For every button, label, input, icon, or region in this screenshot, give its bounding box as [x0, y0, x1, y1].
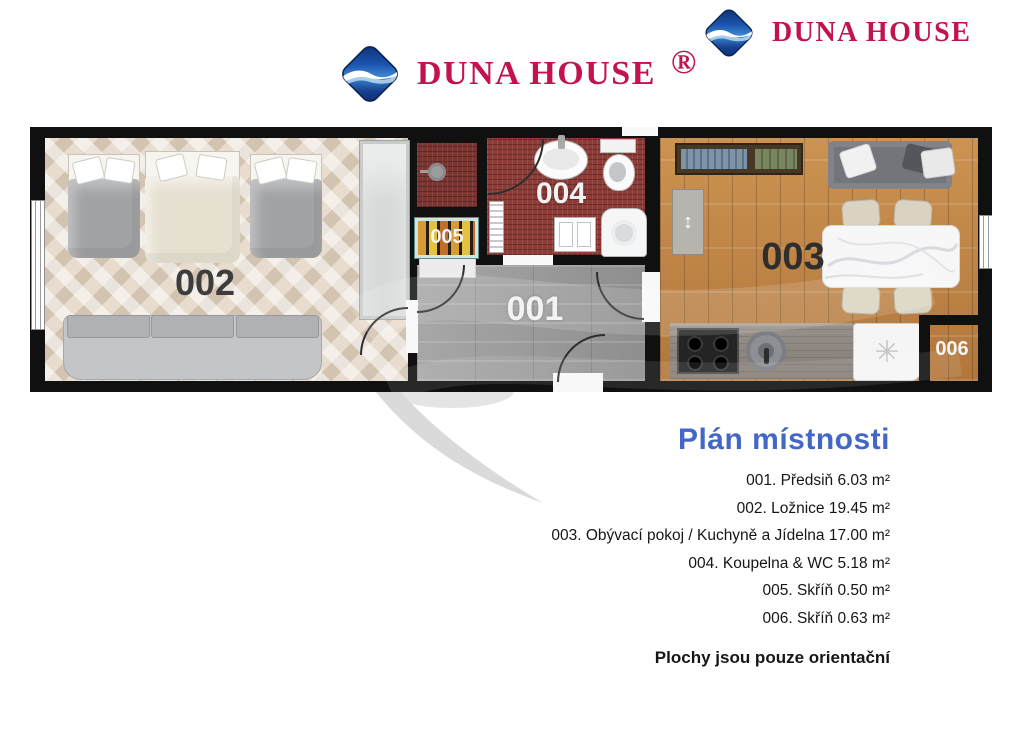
sofa-cushion: [67, 315, 150, 338]
room-label-001: 001: [485, 292, 585, 326]
wardrobe-icon: [359, 140, 410, 320]
shower-area-floor: [417, 143, 477, 207]
books-blue: [681, 149, 747, 169]
room-label-002: 002: [160, 265, 250, 301]
bathroom-cabinet-icon: [554, 217, 596, 252]
wall-gap-top: [622, 127, 658, 136]
bench-arrow: ↕: [683, 211, 693, 234]
marble-veins: [823, 226, 959, 287]
room-label-003: 003: [748, 238, 838, 276]
burner: [687, 336, 703, 352]
door-opening-bathroom: [503, 255, 553, 265]
legend: Plán místnosti 001. Předsiň 6.03 m² 002.…: [551, 423, 890, 668]
legend-item: 003. Obývací pokoj / Kuchyně a Jídelna 1…: [551, 522, 890, 550]
legend-item: 002. Ložnice 19.45 m²: [551, 495, 890, 523]
shower-icon: [428, 163, 446, 181]
window-left: [31, 200, 45, 330]
registered-mark: ®: [671, 44, 698, 82]
room-label-004: 004: [516, 179, 606, 209]
bed-blanket: [145, 176, 240, 263]
duna-diamond-logo-icon: [338, 42, 402, 106]
toilet-bowl: [603, 154, 635, 191]
room-label-005: 005: [417, 227, 477, 247]
refrigerator-icon: ✳: [853, 323, 921, 381]
sofa-icon: [63, 315, 322, 380]
books-green: [755, 149, 797, 169]
duna-house-logo-center: DUNA HOUSE®: [338, 42, 698, 106]
duna-house-logo-topright: DUNA HOUSE: [702, 6, 971, 60]
window-right: [979, 215, 992, 269]
bed-icon: [145, 151, 240, 263]
legend-item: 004. Koupelna & WC 5.18 m²: [551, 550, 890, 578]
chair-icon: [893, 284, 932, 315]
burner: [713, 336, 729, 352]
burner: [713, 355, 729, 371]
chair-icon: [841, 284, 880, 315]
bed-blanket: [250, 179, 322, 258]
legend-footnote: Plochy jsou pouze orientační: [551, 648, 890, 668]
stove-icon: [677, 328, 739, 374]
toilet-tank: [600, 139, 636, 153]
legend-title: Plán místnosti: [551, 423, 890, 457]
sofa-cushion: [151, 315, 234, 338]
legend-item: 006. Skříň 0.63 m²: [551, 605, 890, 633]
pillow-icon: [838, 143, 877, 180]
sofa-cushion: [236, 315, 319, 338]
legend-item: 001. Předsiň 6.03 m²: [551, 467, 890, 495]
kitchen-sink-icon: [746, 331, 786, 371]
floor-plan: 002 005 004 001 ↕: [30, 127, 992, 392]
logo-wordmark: DUNA HOUSE: [772, 17, 971, 49]
room-label-006: 006: [926, 339, 978, 359]
pillow-icon: [920, 147, 956, 179]
radiator-icon: [489, 201, 504, 253]
duna-diamond-logo-icon: [702, 6, 756, 60]
wall-segment: [919, 315, 978, 325]
legend-item: 005. Skříň 0.50 m²: [551, 577, 890, 605]
bed-icon: [250, 154, 322, 258]
pillow-icon: [103, 157, 135, 184]
logo-wordmark: DUNA HOUSE: [417, 55, 656, 93]
bed-blanket: [68, 179, 140, 258]
fridge-star: ✳: [874, 335, 899, 370]
pillow-icon: [285, 157, 317, 184]
pillow-icon: [195, 154, 227, 181]
burner: [687, 355, 703, 371]
sofa-icon: [828, 141, 952, 189]
door-opening-living: [642, 272, 660, 322]
dining-table-icon: [822, 225, 960, 288]
fold-bench-icon: ↕: [672, 189, 704, 255]
washing-machine-icon: [601, 208, 647, 257]
bed-icon: [68, 154, 140, 258]
bookshelf-icon: [675, 143, 803, 175]
